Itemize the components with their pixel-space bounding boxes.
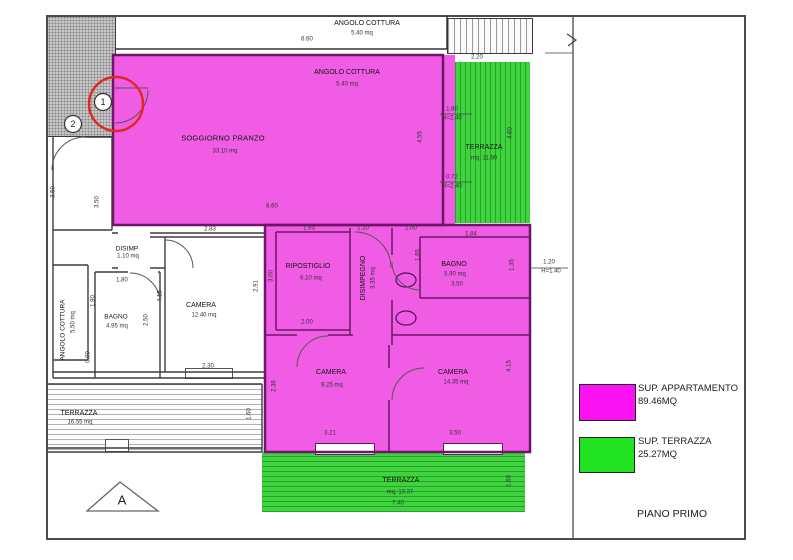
dim: 2.00 — [301, 320, 313, 327]
room-area-terrace-left: 16.55 mq — [67, 420, 92, 427]
room-area-bagno-left: 4.95 mq — [106, 324, 128, 331]
room-label-terrace-right: TERRAZZA — [466, 144, 503, 152]
dim: 0.72 — [446, 175, 458, 182]
dim: H=1.40 — [541, 269, 561, 276]
dim: H=2.40 — [442, 184, 462, 191]
section-letter: A — [118, 493, 127, 508]
legend-apartment-label: SUP. APPARTAMENTO — [638, 383, 738, 394]
dim: 2.30 — [202, 364, 214, 371]
dim: 3.21 — [324, 431, 336, 438]
room-label-terrace-bottom: TERRAZZA — [383, 477, 420, 485]
dim: 1.85 — [416, 249, 423, 261]
dim: 1.20 — [543, 260, 555, 267]
dim: 1.00 — [405, 226, 417, 233]
dim: 0.90 — [86, 351, 93, 363]
dim: 1.35 — [510, 259, 517, 271]
legend-terrace-label: SUP. TERRAZZA — [638, 436, 712, 447]
room-area-ripostiglio: 6.10 mq — [300, 276, 322, 283]
dim: 1.10 — [357, 226, 369, 233]
room-label-soggiorno: SOGGIORNO PRANZO — [181, 135, 265, 144]
dim: 1.60 — [247, 408, 254, 420]
room-area-kitchen-left: 5.50 mq — [71, 311, 78, 333]
dim: 4.60 — [508, 127, 515, 139]
room-area-soggiorno: 33.10 mq — [212, 149, 237, 156]
legend-apartment-value: 89.46MQ — [638, 396, 677, 407]
dim: 3.50 — [51, 186, 58, 198]
legend-terrace-swatch — [579, 437, 635, 473]
room-area-camera1: 9.25 mq — [321, 383, 343, 390]
dim: 1.80 — [446, 107, 458, 114]
dim: 2.91 — [254, 280, 261, 292]
room-label-camera-left: CAMERA — [186, 302, 216, 310]
room-area-camera-left: 12.40 mq — [191, 313, 216, 320]
dim: 1.84 — [465, 232, 477, 239]
dim: 2.83 — [204, 227, 216, 234]
dim: 7.40 — [392, 501, 404, 508]
dim: 8.60 — [266, 204, 278, 211]
room-area-terrace-bottom: mq. 13.37 — [387, 490, 414, 497]
door-marker-2: 2 — [70, 119, 75, 129]
room-area-bagno: 5.90 mq — [444, 272, 466, 279]
room-area-camera2: 14.35 mq — [443, 380, 468, 387]
room-area-disimp: 1.10 mq — [117, 254, 139, 261]
door-marker-1: 1 — [100, 97, 105, 107]
dim: 6.60 — [301, 37, 313, 44]
dim: 3.50 — [451, 282, 463, 289]
room-area-neighbor-kitchen: 5.40 mq — [351, 31, 373, 38]
room-area-disimpegno: 3.35 mq — [371, 267, 378, 289]
dim: 2.20 — [471, 55, 483, 62]
room-label-disimp: DISIMP — [116, 245, 138, 252]
dim: 1.90 — [91, 295, 98, 307]
dim: 3.50 — [449, 431, 461, 438]
room-label-ripostiglio: RIPOSTIGLIO — [286, 263, 331, 271]
dim: 4.15 — [507, 360, 514, 372]
dim: 4.55 — [418, 131, 425, 143]
room-label-kitchen-left: ANGOLO COTTURA — [59, 299, 66, 360]
dim: 2.50 — [144, 314, 151, 326]
dim: 1.93 — [303, 226, 315, 233]
room-area-terrace-right: mq. 11.90 — [471, 156, 497, 163]
floorplan-sheet: 1 2 A ANGOLO COTTURA 5.40 mq SOGGIORNO P… — [0, 0, 793, 560]
room-label-bagno: BAGNO — [441, 261, 466, 269]
room-label-camera1: CAMERA — [316, 369, 346, 377]
legend-apartment-swatch — [579, 384, 636, 421]
legend-terrace-value: 25.27MQ — [638, 449, 677, 460]
room-area-kitchen: 5.40 mq — [336, 82, 358, 89]
room-label-neighbor-kitchen: ANGOLO COTTURA — [334, 20, 400, 28]
dim: H=2.40 — [442, 116, 462, 123]
dim: 3.50 — [95, 196, 102, 208]
dim: 1.80 — [116, 278, 128, 285]
dim: 3.00 — [269, 270, 276, 282]
room-label-terrace-left: TERRAZZA — [61, 410, 98, 418]
dim: 1.60 — [507, 475, 514, 487]
floor-title: PIANO PRIMO — [637, 508, 707, 520]
dim: 4.15 — [158, 290, 165, 302]
dim: 2.36 — [272, 380, 279, 392]
room-label-bagno-left: BAGNO — [104, 313, 127, 320]
room-label-camera2: CAMERA — [438, 369, 468, 377]
room-label-kitchen: ANGOLO COTTURA — [314, 69, 380, 77]
room-label-disimpegno: DISIMPEGNO — [360, 256, 368, 301]
